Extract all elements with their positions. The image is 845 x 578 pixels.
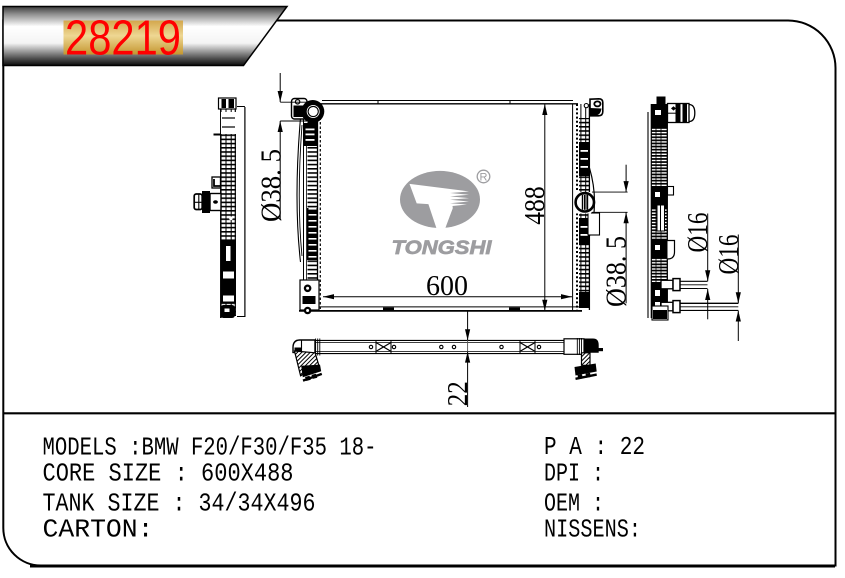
svg-text:P A : 22: P A : 22 <box>544 432 645 462</box>
svg-text:Ø16: Ø16 <box>714 235 745 275</box>
svg-text:NISSENS:: NISSENS: <box>544 515 641 545</box>
svg-text:22: 22 <box>443 381 474 406</box>
svg-text:Ø38. 5: Ø38. 5 <box>601 236 632 307</box>
svg-text:28219: 28219 <box>65 12 181 66</box>
svg-text:CORE SIZE : 600X488: CORE SIZE : 600X488 <box>43 459 294 489</box>
svg-text:Ø16: Ø16 <box>683 213 714 253</box>
svg-text:R: R <box>480 172 488 184</box>
svg-text:TONGSHI: TONGSHI <box>392 238 493 259</box>
svg-text:488: 488 <box>520 186 551 225</box>
svg-text:DPI :: DPI : <box>544 459 604 489</box>
svg-text:Ø38. 5: Ø38. 5 <box>256 149 287 222</box>
svg-text:600: 600 <box>426 271 468 302</box>
svg-text:CARTON:: CARTON: <box>43 515 154 545</box>
